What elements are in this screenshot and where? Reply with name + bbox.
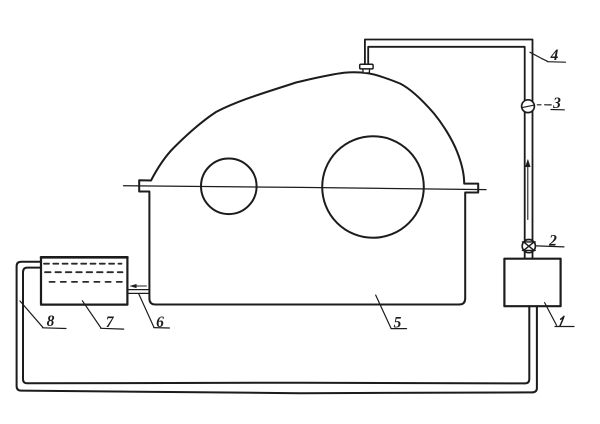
svg-text:5: 5 [394, 314, 402, 331]
svg-text:4: 4 [550, 47, 559, 64]
svg-text:3: 3 [552, 95, 561, 112]
svg-text:7: 7 [106, 314, 115, 331]
svg-text:2: 2 [548, 233, 557, 250]
svg-text:6: 6 [156, 314, 164, 331]
svg-text:8: 8 [47, 313, 55, 330]
